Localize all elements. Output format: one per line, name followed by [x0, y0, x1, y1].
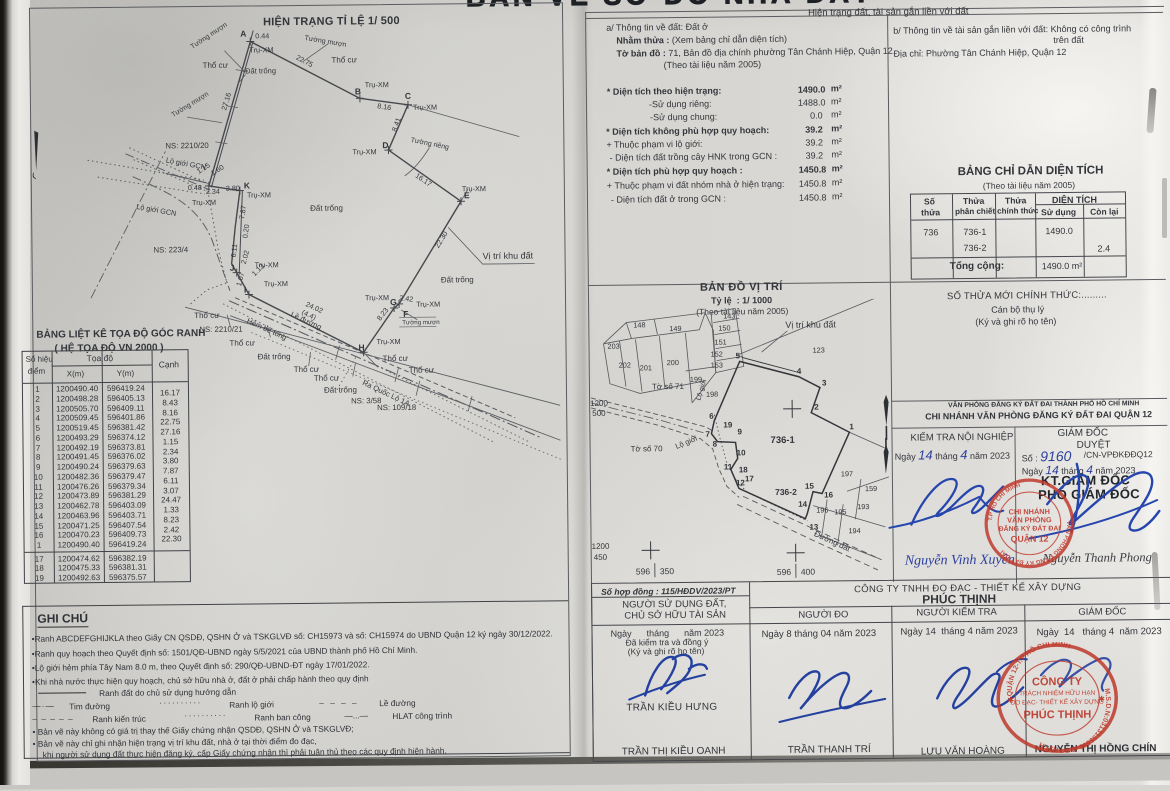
svg-text:A: A: [240, 29, 246, 39]
svg-text:Lộ giới GCN: Lộ giới GCN: [165, 155, 206, 171]
svg-text:1200: 1200: [590, 399, 608, 408]
svg-text:2: 2: [814, 403, 819, 412]
svg-text:Tường mượn: Tường mượn: [402, 319, 440, 326]
svg-text:K: K: [244, 180, 251, 190]
svg-text:8.16: 8.16: [377, 101, 392, 112]
svg-text:Trụ-XM: Trụ-XM: [376, 337, 400, 346]
svg-text:Tường mượn: Tường mượn: [304, 35, 347, 49]
svg-text:Trụ-XM: Trụ-XM: [192, 198, 216, 207]
svg-text:Trụ-XM: Trụ-XM: [247, 190, 271, 199]
svg-text:596: 596: [777, 567, 792, 577]
svg-text:NS: 2210/21: NS: 2210/21: [199, 325, 242, 334]
svg-text:Tường mượn: Tường mượn: [170, 91, 210, 119]
svg-text:Trụ-XM: Trụ-XM: [249, 45, 273, 54]
svg-text:Đất trống: Đất trống: [441, 275, 474, 284]
svg-text:Trụ-XM: Trụ-XM: [462, 184, 486, 193]
svg-text:I: I: [244, 285, 246, 295]
svg-text:Đất trống: Đất trống: [258, 352, 291, 361]
svg-text:Thổ cư: Thổ cư: [314, 374, 340, 383]
svg-text:123: 123: [813, 345, 825, 354]
svg-text:18: 18: [739, 465, 749, 474]
svg-text:Đất trống: Đất trống: [310, 204, 343, 213]
svg-text:19: 19: [723, 420, 733, 429]
svg-text:Thổ cư: Thổ cư: [203, 61, 229, 70]
svg-text:C: C: [405, 91, 411, 101]
svg-text:195: 195: [834, 507, 846, 516]
svg-text:8: 8: [713, 440, 718, 449]
svg-text:NS: 2210/20: NS: 2210/20: [165, 141, 209, 150]
svg-text:193: 193: [857, 502, 869, 511]
svg-text:TRÁCH NHIỆM HỮU HẠN: TRÁCH NHIỆM HỮU HẠN: [1019, 688, 1096, 698]
svg-text:J: J: [230, 263, 235, 273]
svg-text:D: D: [382, 140, 388, 150]
svg-text:10: 10: [737, 448, 747, 457]
svg-text:150: 150: [718, 323, 730, 332]
svg-text:202: 202: [619, 361, 631, 370]
svg-text:6.11: 6.11: [229, 243, 240, 258]
svg-text:0.20: 0.20: [240, 224, 251, 239]
svg-text:3.80: 3.80: [226, 184, 240, 193]
svg-text:151: 151: [714, 338, 726, 347]
svg-text:Trụ-XM: Trụ-XM: [264, 279, 288, 288]
svg-text:8.41: 8.41: [390, 116, 403, 132]
svg-text:152: 152: [711, 350, 723, 359]
svg-text:G: G: [390, 297, 397, 307]
svg-text:736-1: 736-1: [770, 435, 795, 446]
svg-text:Tường mượn: Tường mượn: [190, 21, 229, 50]
svg-text:4: 4: [797, 367, 802, 376]
svg-text:Trụ-XM: Trụ-XM: [365, 80, 389, 89]
svg-text:-Đất trống: -Đất trống: [243, 66, 276, 75]
svg-text:201: 201: [640, 363, 652, 372]
svg-text:Thổ cư: Thổ cư: [294, 365, 320, 374]
svg-text:Trụ-XM: Trụ-XM: [352, 147, 376, 156]
svg-text:Thổ cư: Thổ cư: [383, 354, 409, 363]
svg-text:Trụ-XM: Trụ-XM: [416, 300, 440, 309]
svg-text:194: 194: [848, 526, 860, 535]
svg-text:NS: 223/4: NS: 223/4: [153, 245, 188, 254]
svg-text:Đường đất: Đường đất: [813, 529, 853, 553]
svg-text:Thổ cư: Thổ cư: [409, 366, 435, 375]
svg-text:22.30: 22.30: [433, 230, 450, 250]
svg-text:Trụ-XM: Trụ-XM: [413, 103, 437, 112]
svg-text:VĂN PHÒNG: VĂN PHÒNG: [1007, 515, 1052, 524]
svg-text:1: 1: [849, 422, 854, 431]
svg-text:400: 400: [801, 567, 816, 577]
svg-text:B: B: [355, 86, 361, 96]
svg-text:1.60: 1.60: [209, 162, 226, 177]
svg-text:✱: ✱: [1007, 696, 1014, 705]
svg-text:149: 149: [669, 324, 681, 333]
svg-text:H: H: [358, 342, 364, 352]
svg-text:3: 3: [822, 378, 827, 387]
svg-text:NS: 109/18: NS: 109/18: [377, 403, 416, 412]
svg-text:16: 16: [824, 490, 834, 499]
svg-text:6: 6: [709, 412, 714, 421]
svg-text:Trụ-XM: Trụ-XM: [365, 293, 389, 302]
svg-text:736-2: 736-2: [775, 487, 797, 497]
svg-text:CÔNG TY: CÔNG TY: [1032, 675, 1083, 689]
svg-text:Tường riêng: Tường riêng: [410, 137, 450, 152]
svg-text:Thổ cư: Thổ cư: [229, 338, 255, 347]
svg-text:Thổ cư: Thổ cư: [331, 55, 357, 64]
svg-text:14: 14: [798, 500, 808, 509]
svg-text:350: 350: [660, 566, 675, 576]
svg-text:197: 197: [841, 469, 853, 478]
svg-text:2.34: 2.34: [206, 187, 220, 196]
svg-text:Lộ giới GCN: Lộ giới GCN: [136, 202, 177, 218]
svg-text:Tờ số 70: Tờ số 70: [631, 444, 664, 453]
svg-text:5: 5: [736, 351, 741, 360]
svg-text:148: 148: [633, 320, 645, 329]
svg-text:Thổ cư: Thổ cư: [194, 311, 220, 320]
svg-text:450: 450: [594, 553, 608, 562]
svg-text:0.48: 0.48: [188, 183, 202, 192]
svg-text:196: 196: [816, 505, 828, 514]
svg-text:9: 9: [737, 427, 742, 436]
svg-text:143: 143: [723, 311, 735, 320]
svg-text:200: 200: [667, 358, 679, 367]
svg-text:Vị trí khu đất: Vị trí khu đất: [785, 319, 836, 330]
svg-text:PHÚC THỊNH: PHÚC THỊNH: [1023, 708, 1091, 722]
svg-text:159: 159: [865, 484, 877, 493]
svg-text:11: 11: [724, 462, 733, 471]
svg-text:Vị trí khu đất: Vị trí khu đất: [483, 251, 534, 262]
svg-text:2.42: 2.42: [399, 293, 414, 304]
svg-text:F: F: [403, 309, 408, 319]
svg-text:Lộ giới: Lộ giới: [674, 434, 699, 451]
svg-text:QUẬN 12: QUẬN 12: [1011, 533, 1049, 544]
svg-text:0.44: 0.44: [255, 31, 269, 40]
svg-text:153: 153: [711, 361, 723, 370]
svg-text:1200: 1200: [592, 542, 610, 551]
svg-text:198: 198: [706, 390, 718, 399]
svg-text:17: 17: [745, 474, 755, 483]
svg-text:203: 203: [607, 342, 619, 351]
svg-text:7: 7: [705, 430, 710, 439]
svg-text:16.17: 16.17: [414, 171, 434, 189]
svg-text:2.02: 2.02: [239, 249, 251, 265]
svg-text:500: 500: [592, 409, 606, 418]
svg-text:596: 596: [636, 566, 651, 576]
svg-text:Đất trống: Đất trống: [324, 385, 357, 394]
svg-text:Tờ số 71: Tờ số 71: [652, 382, 685, 391]
svg-text:8.23: 8.23: [375, 306, 391, 323]
svg-text:7.87: 7.87: [237, 205, 248, 220]
svg-text:15: 15: [805, 482, 815, 491]
